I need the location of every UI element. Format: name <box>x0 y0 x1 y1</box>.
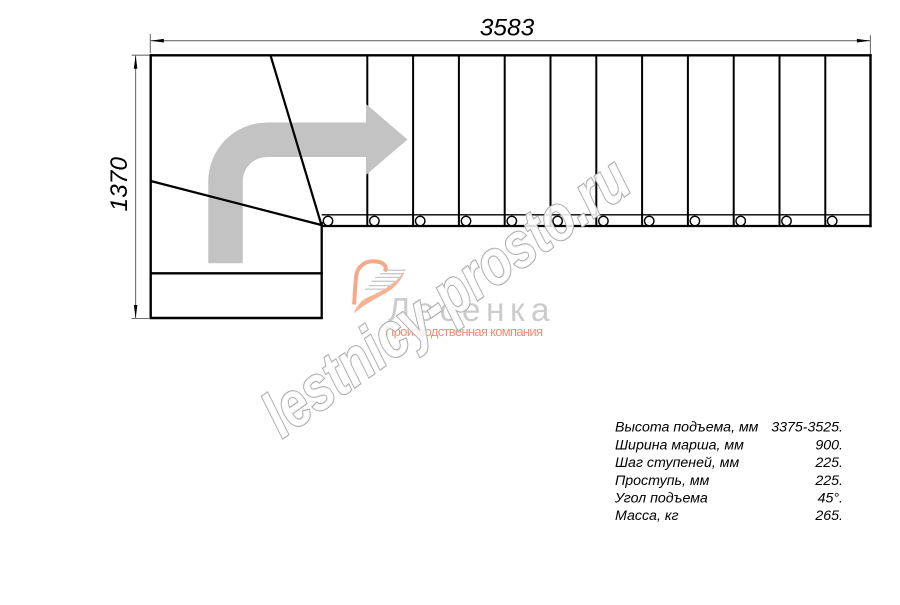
svg-text:900.: 900. <box>815 437 843 453</box>
svg-text:Шаг ступеней, мм: Шаг ступеней, мм <box>615 455 739 471</box>
svg-text:45°.: 45°. <box>818 491 843 507</box>
svg-text:Высота подъема, мм: Высота подъема, мм <box>615 420 759 436</box>
svg-text:Проступь, мм: Проступь, мм <box>615 473 710 489</box>
svg-text:Угол подъема: Угол подъема <box>614 491 708 507</box>
svg-text:Ширина марша, мм: Ширина марша, мм <box>615 437 744 453</box>
svg-text:3375-3525.: 3375-3525. <box>771 420 843 436</box>
svg-text:225.: 225. <box>814 473 843 489</box>
svg-text:3583: 3583 <box>480 14 535 41</box>
svg-text:Масса, кг: Масса, кг <box>615 508 679 524</box>
svg-text:1370: 1370 <box>106 157 133 212</box>
svg-text:225.: 225. <box>814 455 843 471</box>
svg-text:265.: 265. <box>814 508 843 524</box>
